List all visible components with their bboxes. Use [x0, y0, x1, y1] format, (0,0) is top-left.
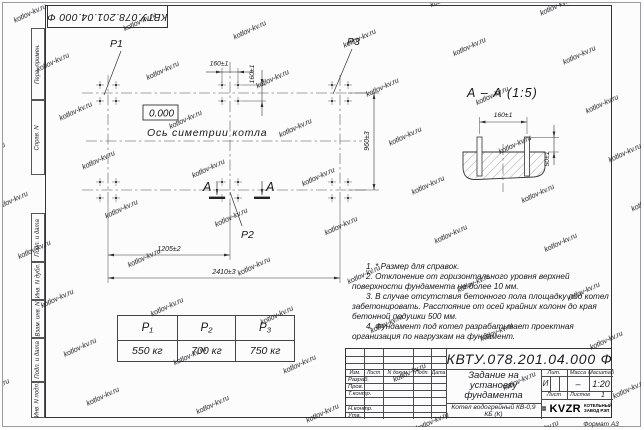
tb-scale-value: 1:20: [589, 376, 613, 391]
note-item: 3. В случае отсутствия бетонного пола пл…: [352, 292, 614, 322]
boiler-coil-icon: [542, 402, 546, 415]
load-value-p3: 750 кг: [235, 340, 294, 361]
tb-lit-value: И: [541, 376, 550, 391]
tb-mass-label: Масса: [567, 369, 589, 376]
tb-scale-label: Масштаб: [589, 369, 613, 376]
tb-col-izm: Изм.: [346, 369, 364, 376]
tb-mass-value: –: [567, 376, 589, 391]
tb-line: [550, 376, 551, 391]
tb-col-podp: Подп.: [413, 369, 431, 376]
tb-lit-label: Лит.: [541, 369, 567, 376]
stamp-label: Взам. инв. N: [35, 302, 41, 337]
tb-line: [559, 376, 560, 391]
stamp-label: Подп. и дата: [35, 341, 41, 379]
brand-logo: KVZR КОТЕЛЬНЫЙ ЗАВОД РЭП: [542, 399, 612, 418]
tb-col-ndok: N докум.: [383, 369, 413, 376]
stamp-label: Инв. N подл.: [35, 382, 41, 417]
tb-row-tkontr: Т.контр.: [346, 390, 385, 397]
load-value-p2: 700 кг: [177, 340, 236, 361]
load-header-p2: P₂: [177, 316, 236, 340]
tb-col-list: Лист: [364, 369, 383, 376]
tb-row-nkontr: Н.контр.: [346, 405, 385, 412]
stamp-box-vzam-inv: Взам. инв. N: [31, 300, 45, 338]
stamp-label: Справ. N: [35, 125, 41, 150]
notes-block: 1. * Размер для справок. 2. Отклонение о…: [352, 262, 614, 342]
brand-caption: КОТЕЛЬНЫЙ ЗАВОД РЭП: [584, 404, 612, 414]
tb-sheet-label: Лист: [541, 391, 567, 399]
tb-sheets-value: 1: [593, 391, 613, 399]
tb-product-name: Котел водогрейный КВ-0,9 КБ (К): [447, 404, 540, 418]
brand-caption-line2: ЗАВОД РЭП: [584, 408, 609, 413]
doc-number-top-box: КВТУ.078.201.04.000 Ф: [47, 5, 168, 28]
note-item: 4. Фундамент под котел разрабатывает про…: [352, 322, 614, 342]
stamp-box-inv-podl: Инв. N подл.: [31, 382, 45, 418]
title-block: Изм. Лист N докум. Подп. Дата Разраб. Пр…: [345, 348, 612, 418]
tb-line: [413, 349, 414, 419]
loads-table: P₁ P₂ P₃ 550 кг 700 кг 750 кг: [117, 315, 295, 362]
tb-sheets-label: Листов: [567, 391, 593, 399]
stamp-label: Перв. примен.: [35, 44, 41, 84]
stamp-box-sprav-n: Справ. N: [31, 100, 45, 175]
note-item: 1. * Размер для справок.: [352, 262, 614, 272]
note-item: 2. Отклонение от горизонтального уровня …: [352, 272, 614, 292]
stamp-box-perv-primen: Перв. примен.: [31, 28, 45, 100]
stamp-label: Подп. и дата: [35, 219, 41, 257]
tb-doc-number: КВТУ.078.201.04.000 Ф: [446, 349, 613, 369]
doc-number-top-text: КВТУ.078.201.04.000 Ф: [47, 11, 167, 23]
tb-col-data: Дата: [431, 369, 446, 376]
load-header-p1: P₁: [118, 316, 177, 340]
tb-doc-title: Задание на установку фундамента: [448, 370, 539, 402]
stamp-label: Инв. N дубл.: [35, 264, 41, 299]
format-label: Формат А3: [566, 419, 636, 429]
drawing-sheet: 160±1 160±1 960±3 1205±2 2410±3 P1 P3 P2…: [0, 0, 644, 430]
stamp-box-inv-dubl: Инв. N дубл.: [31, 262, 45, 300]
tb-row-utv: Утв.: [346, 412, 385, 419]
tb-row-razrab: Разраб.: [346, 376, 385, 383]
stamp-box-podp-data-2: Подп. и дата: [31, 338, 45, 382]
load-value-p1: 550 кг: [118, 340, 177, 361]
stamp-box-podp-data-1: Подп. и дата: [31, 213, 45, 262]
tb-row-prov: Пров.: [346, 383, 385, 390]
brand-name: KVZR: [549, 403, 581, 415]
tb-line: [431, 349, 432, 419]
load-header-p3: P₃: [235, 316, 294, 340]
